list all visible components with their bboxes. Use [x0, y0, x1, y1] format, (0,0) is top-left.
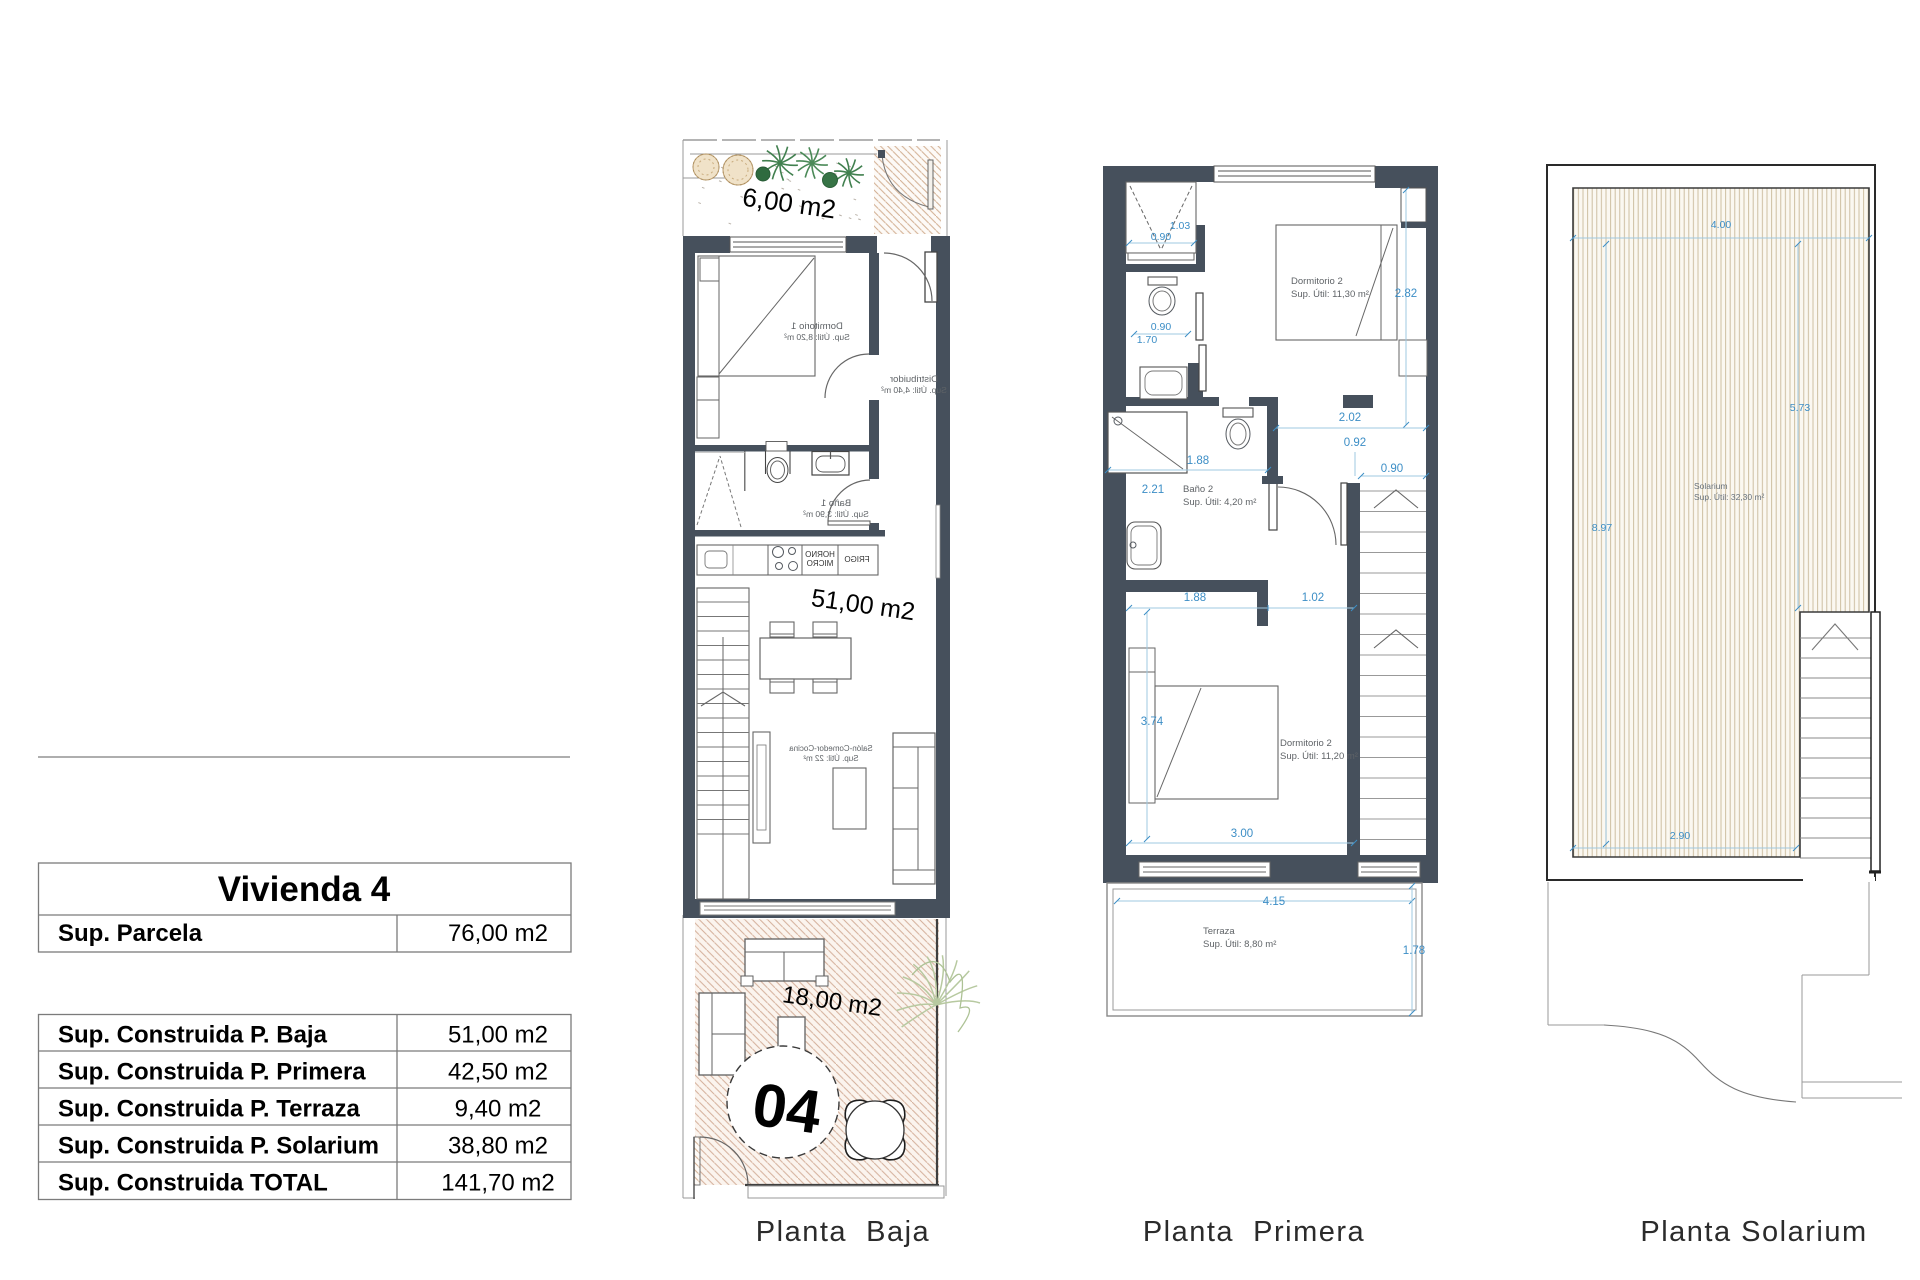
svg-text:Distribuidor: Distribuidor — [890, 374, 938, 385]
svg-text:04: 04 — [749, 1070, 826, 1147]
svg-text:Sup. Útil: 22 m²: Sup. Útil: 22 m² — [803, 754, 858, 763]
svg-text:Baño 2: Baño 2 — [1183, 484, 1213, 495]
svg-text:Sup. Útil: 4,40 m²: Sup. Útil: 4,40 m² — [881, 385, 947, 395]
svg-text:1.03: 1.03 — [1170, 220, 1191, 232]
svg-text:4.00: 4.00 — [1711, 219, 1732, 231]
svg-text:51,00 m2: 51,00 m2 — [448, 1022, 548, 1049]
svg-text:2.21: 2.21 — [1142, 484, 1164, 496]
svg-text:1.88: 1.88 — [1187, 455, 1209, 467]
svg-text:Sup. Útil: 8,80 m²: Sup. Útil: 8,80 m² — [1203, 939, 1276, 950]
svg-text:Baño 1: Baño 1 — [821, 498, 851, 509]
svg-text:3.74: 3.74 — [1141, 716, 1164, 728]
svg-text:Dormitorio 2: Dormitorio 2 — [1291, 276, 1343, 287]
svg-text:3.00: 3.00 — [1231, 828, 1253, 840]
svg-text:42,50 m2: 42,50 m2 — [448, 1059, 548, 1086]
svg-text:Sup. Construida P. Solarium: Sup. Construida P. Solarium — [58, 1133, 379, 1160]
svg-text:Solarium: Solarium — [1694, 481, 1728, 491]
svg-text:1.88: 1.88 — [1184, 592, 1206, 604]
svg-text:Sup. Útil: 11,20 m²: Sup. Útil: 11,20 m² — [1280, 751, 1358, 762]
svg-text:Sup. Útil: 32,30 m²: Sup. Útil: 32,30 m² — [1694, 492, 1765, 502]
svg-text:Sup. Útil: 11,30 m²: Sup. Útil: 11,30 m² — [1291, 289, 1369, 300]
svg-text:9,40 m2: 9,40 m2 — [455, 1096, 542, 1123]
svg-text:Sup. Parcela: Sup. Parcela — [58, 920, 203, 947]
svg-text:Sup. Construida P. Primera: Sup. Construida P. Primera — [58, 1059, 366, 1086]
svg-text:4.15: 4.15 — [1263, 896, 1285, 908]
svg-text:Sup. Construida P. Terraza: Sup. Construida P. Terraza — [58, 1096, 361, 1123]
svg-text:0.90: 0.90 — [1151, 231, 1172, 243]
svg-text:2.90: 2.90 — [1670, 830, 1691, 842]
svg-text:2.02: 2.02 — [1339, 412, 1361, 424]
svg-text:38,80 m2: 38,80 m2 — [448, 1133, 548, 1160]
svg-text:0.92: 0.92 — [1344, 437, 1366, 449]
svg-text:1.78: 1.78 — [1403, 945, 1425, 957]
svg-text:2.82: 2.82 — [1395, 288, 1417, 300]
svg-text:HORNO: HORNO — [805, 550, 835, 559]
svg-text:FRIGO: FRIGO — [844, 555, 869, 564]
svg-text:76,00 m2: 76,00 m2 — [448, 920, 548, 947]
svg-text:Sup. Útil: 8,20 m²: Sup. Útil: 8,20 m² — [784, 332, 850, 342]
svg-text:MICRO: MICRO — [807, 559, 834, 568]
svg-text:Planta Solarium: Planta Solarium — [1640, 1216, 1867, 1248]
svg-text:Sup. Útil: 4,20 m²: Sup. Útil: 4,20 m² — [1183, 497, 1256, 508]
svg-text:0.90: 0.90 — [1381, 463, 1403, 475]
svg-text:Dormitorio 2: Dormitorio 2 — [1280, 738, 1332, 749]
svg-text:141,70 m2: 141,70 m2 — [441, 1170, 554, 1197]
svg-text:Sup. Construida P. Baja: Sup. Construida P. Baja — [58, 1022, 328, 1049]
svg-text:0.90: 0.90 — [1151, 321, 1172, 333]
svg-text:8.97: 8.97 — [1592, 522, 1613, 534]
svg-text:Sup. Útil: 3,90 m²: Sup. Útil: 3,90 m² — [803, 509, 869, 519]
svg-text:Sup. Construida TOTAL: Sup. Construida TOTAL — [58, 1170, 328, 1197]
svg-text:Dormitorio 1: Dormitorio 1 — [791, 321, 843, 332]
svg-text:1.70: 1.70 — [1137, 334, 1158, 346]
svg-text:Planta Primera: Planta Primera — [1143, 1216, 1365, 1248]
svg-text:5.73: 5.73 — [1790, 402, 1811, 414]
svg-text:Salón-Comedor-Cocina: Salón-Comedor-Cocina — [789, 744, 873, 753]
svg-text:Vivienda 4: Vivienda 4 — [218, 870, 391, 909]
svg-text:Terraza: Terraza — [1203, 926, 1235, 937]
svg-text:Planta Baja: Planta Baja — [756, 1216, 930, 1248]
svg-text:1.02: 1.02 — [1302, 592, 1324, 604]
